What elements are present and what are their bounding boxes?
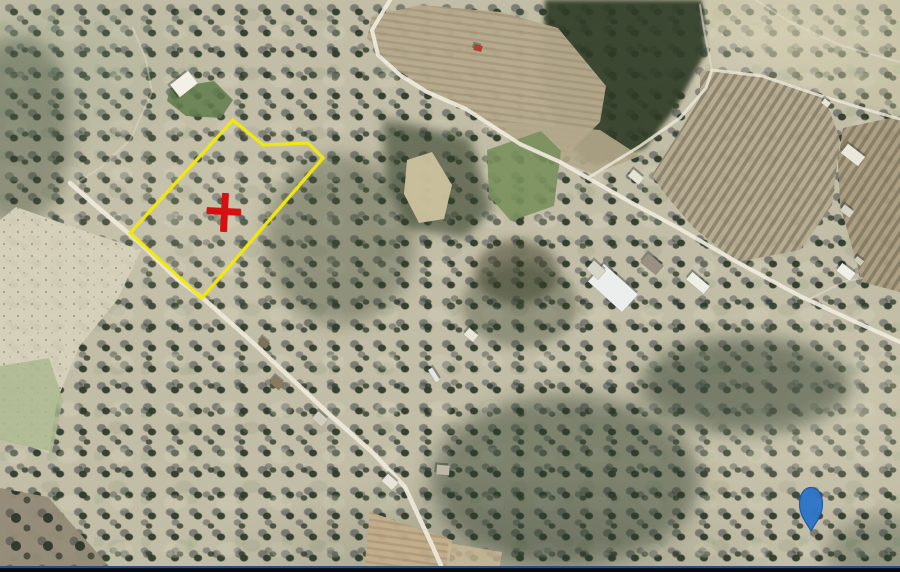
plowed-grove-bottom-left-texture — [0, 488, 114, 572]
barn-gray — [639, 250, 665, 275]
trail-farm-right — [808, 278, 862, 300]
dense-right-of-parcel — [265, 155, 415, 325]
farmhouse-right — [835, 260, 857, 281]
red-cross-marker[interactable] — [205, 192, 241, 233]
blue-location-pin[interactable] — [800, 488, 823, 532]
green-field-bottom-left — [0, 358, 63, 452]
dense-bottom-center — [430, 395, 700, 565]
dense-bottom-right-corner — [825, 515, 900, 572]
shed-white-mid — [684, 269, 711, 294]
scene-svg — [0, 0, 900, 572]
trail-top-left — [78, 28, 152, 182]
hut-brown-1 — [268, 373, 286, 390]
shed-small-junction — [626, 166, 645, 185]
dark-below-green-field — [462, 263, 578, 347]
shed-roadside — [380, 471, 400, 491]
hut-orchard-2 — [434, 462, 450, 475]
hut-streak — [427, 365, 442, 383]
dense-band-mid-right — [640, 337, 850, 433]
satellite-map-view[interactable] — [0, 0, 900, 572]
bottom-edge-bar — [0, 566, 900, 572]
dense-left-edge — [0, 35, 73, 225]
hut-orchard-2-roof — [436, 464, 450, 475]
red-cross-v-bar — [220, 193, 229, 232]
